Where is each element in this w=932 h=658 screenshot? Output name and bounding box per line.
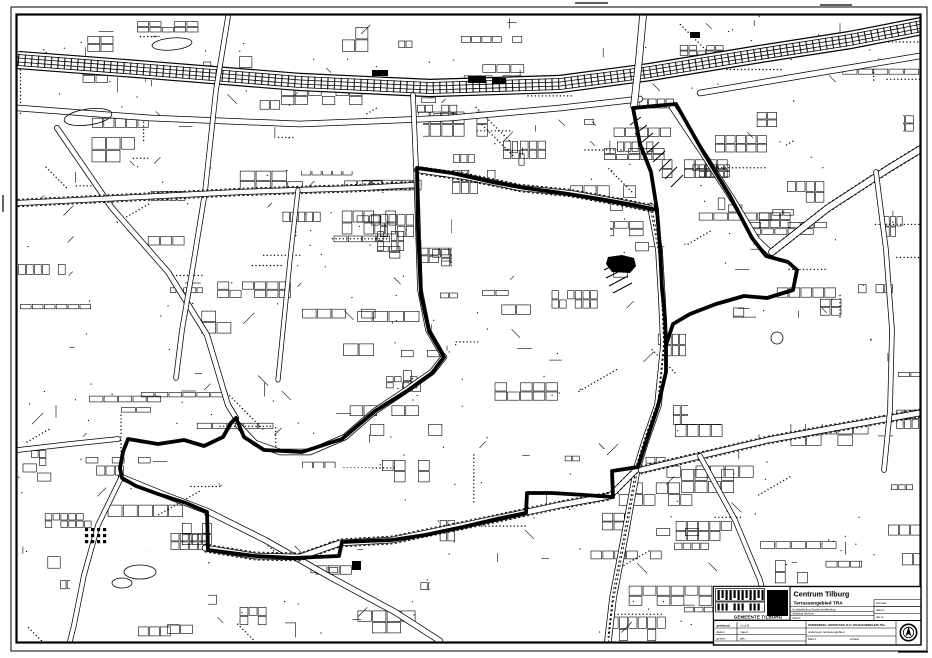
map-sheet-svg: GEMEENTE TILBURG Centrum Tilburg Terrass… (0, 0, 932, 658)
micro-cell: schaal (850, 637, 859, 641)
micro-cell: datum (876, 608, 885, 612)
project-title: Centrum Tilburg (794, 590, 850, 599)
title-block: GEMEENTE TILBURG Centrum Tilburg Terrass… (714, 587, 922, 646)
micro-cell: getekend (717, 624, 730, 628)
micro-header: ONDERDEEL HOOFDAFD. R.O. EN BOUWBELEID T… (808, 623, 886, 627)
drawing-sheet: GEMEENTE TILBURG Centrum Tilburg Terrass… (0, 0, 932, 658)
micro-cell: datum (717, 630, 726, 634)
micro-cell: J.v.d.B. (740, 624, 750, 628)
micro-cell: maart (740, 630, 748, 634)
micro-cell: gezien (717, 637, 726, 641)
project-subtitle: Terrassengebied TRA (794, 601, 844, 607)
micro-cell: formaat (876, 601, 886, 605)
municipality-name: GEMEENTE TILBURG (734, 615, 783, 620)
micro-cell: onderwerp terrassengebied (808, 630, 845, 634)
micro-cell: akk. (740, 637, 746, 641)
micro-row: dienst (793, 616, 801, 620)
map-layers (0, 0, 932, 658)
micro-cell: tek.nr. (876, 615, 884, 619)
logo-square-icon (767, 590, 788, 616)
micro-cell: blad 1 (808, 637, 817, 641)
